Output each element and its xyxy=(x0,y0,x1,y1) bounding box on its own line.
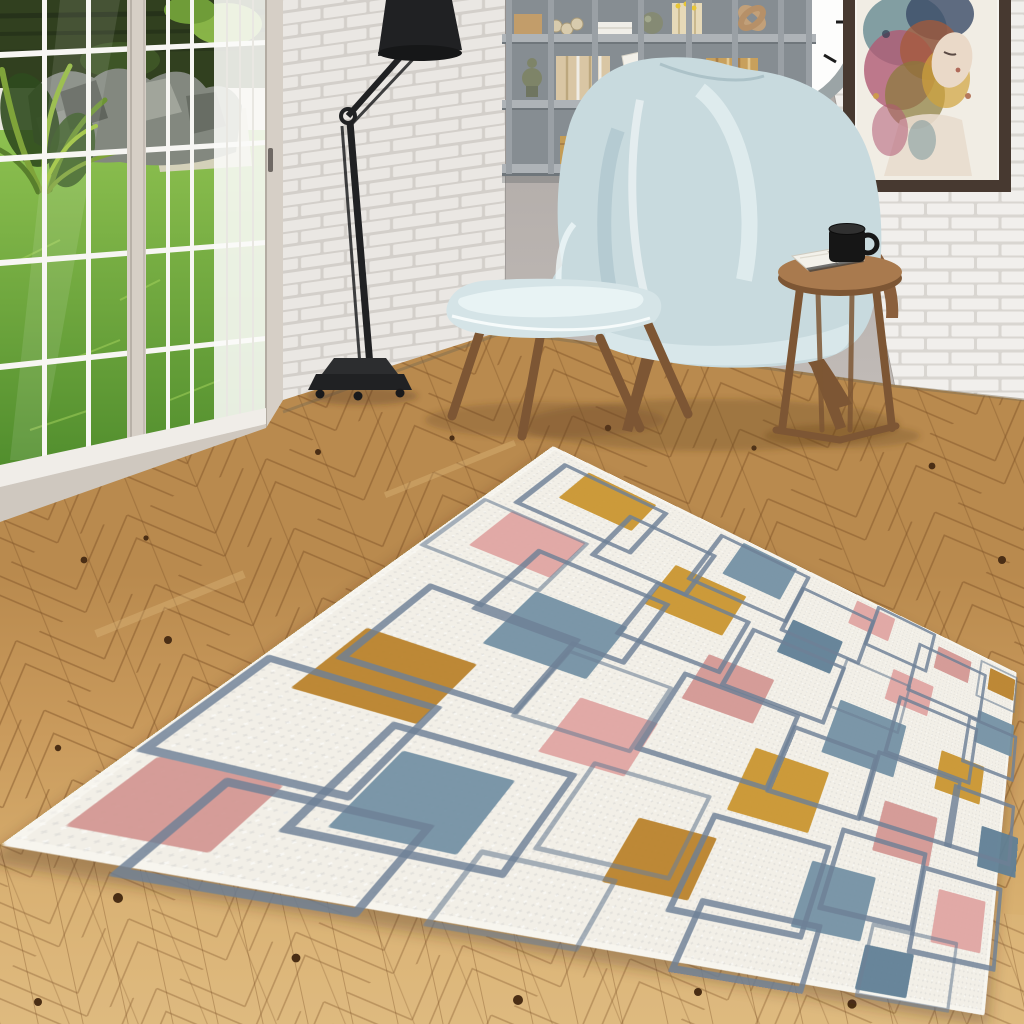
room-photo xyxy=(0,0,1024,1024)
door-stile xyxy=(127,0,146,440)
door-handle[interactable] xyxy=(268,148,273,172)
lamp-base xyxy=(308,374,412,390)
rug-outline-square xyxy=(944,784,1015,867)
artwork-painting xyxy=(857,0,997,180)
door-jamb xyxy=(266,0,283,428)
